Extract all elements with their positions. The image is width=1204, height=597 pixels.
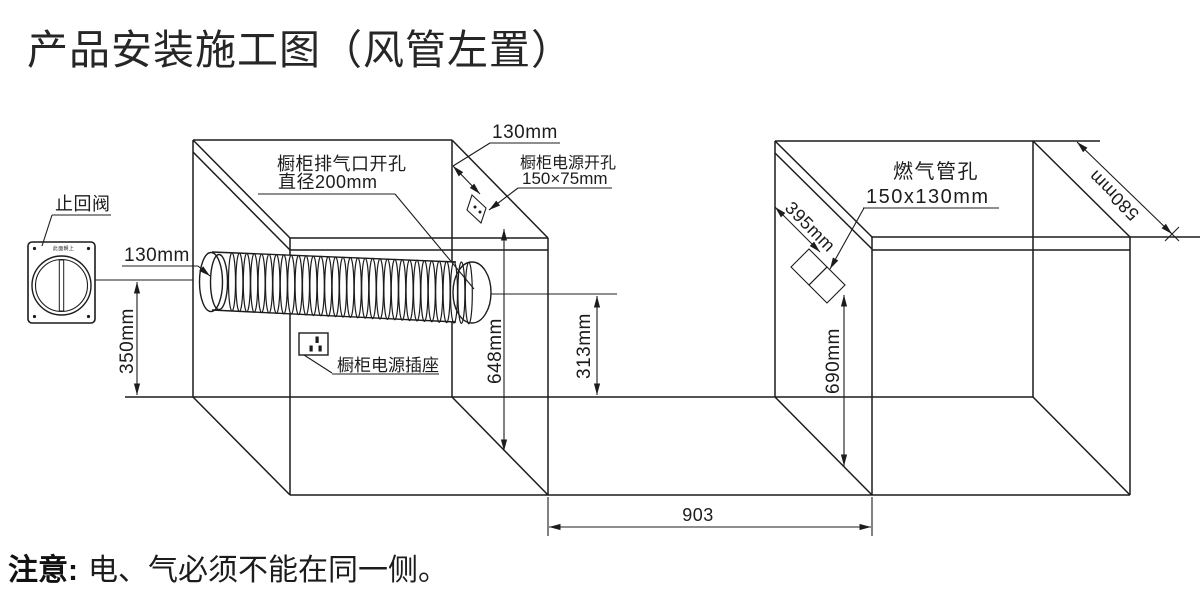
screw-hole <box>87 247 90 250</box>
power-hole <box>467 195 486 223</box>
dim-350-text: 350mm <box>117 308 138 374</box>
power-hole-dot <box>474 206 477 209</box>
gas-hole-label-line2: 150x130mm <box>866 186 990 208</box>
leader-line <box>489 188 518 210</box>
dim-690-text: 690mm <box>823 328 844 394</box>
label-gas-hole: 燃气管孔 150x130mm <box>830 160 999 269</box>
cabinet-edge <box>452 397 548 495</box>
cabinet-edge <box>193 140 290 238</box>
screw-hole <box>87 315 90 318</box>
dimension-line <box>453 166 480 194</box>
note: 注意: 电、气必须不能在同一侧。 <box>8 553 448 587</box>
dim-313mm: 313mm <box>491 294 617 395</box>
socket-outline <box>299 333 328 355</box>
power-hole-dot <box>479 211 482 214</box>
socket <box>299 333 328 355</box>
note-text: 电、气必须不能在同一侧。 <box>88 554 448 587</box>
cabinet-edge <box>1033 397 1130 495</box>
dim-580mm: 580mm <box>1077 142 1179 241</box>
gas-hole-outline <box>791 249 827 285</box>
dim-903-text: 903 <box>682 505 714 525</box>
power-hole-outline <box>467 195 486 223</box>
dim-648-text: 648mm <box>485 318 506 384</box>
dim-350mm: 350mm <box>117 282 138 395</box>
leader-line <box>304 355 332 373</box>
check-valve: 此面朝上 <box>28 242 95 323</box>
socket-pin <box>316 337 319 344</box>
dim-648mm: 648mm <box>485 229 506 451</box>
cabinet-edge <box>775 397 872 495</box>
note-label: 注意: <box>8 553 78 587</box>
dim-580-text: 580mm <box>1085 166 1143 224</box>
dim-313-text: 313mm <box>574 313 595 379</box>
socket-pin <box>319 346 322 352</box>
exhaust-duct <box>200 252 492 324</box>
page-title: 产品安装施工图（风管左置） <box>27 27 573 73</box>
screw-hole <box>33 247 36 250</box>
check-valve-flap-hinge <box>59 260 63 311</box>
top-offset-label: 130mm <box>492 122 558 143</box>
cabinet-edge <box>193 397 290 495</box>
callouts: 止回阀 130mm 350mm 橱柜排气口开孔 直径200mm 130mm <box>42 122 1179 536</box>
dim-395-text: 395mm <box>781 198 839 256</box>
gas-hole-label-line1: 燃气管孔 <box>893 160 979 183</box>
label-check-valve: 止回阀 <box>42 194 111 246</box>
power-hole-label-line2: 150×75mm <box>522 169 608 188</box>
screw-hole <box>33 315 36 318</box>
check-valve-label: 止回阀 <box>55 194 111 214</box>
duct-offset-label: 130mm <box>124 245 190 266</box>
gas-hole-outline <box>809 267 845 303</box>
dim-903: 903 <box>548 497 872 536</box>
label-socket: 橱柜电源插座 <box>304 355 439 375</box>
socket-pin <box>310 346 313 352</box>
dim-690mm: 690mm <box>823 295 844 466</box>
cabinet-edge <box>775 141 872 237</box>
label-duct-offset: 130mm <box>122 245 210 276</box>
exhaust-hole-label-line1: 橱柜排气口开孔 <box>277 154 407 174</box>
valve-orientation-text: 此面朝上 <box>53 245 74 252</box>
exhaust-hole-label-line2: 直径200mm <box>278 172 378 192</box>
countertop-edge <box>193 152 290 250</box>
installation-diagram: 产品安装施工图（风管左置） <box>0 0 1204 597</box>
label-power-hole: 橱柜电源开孔 150×75mm <box>489 154 616 210</box>
socket-label: 橱柜电源插座 <box>337 356 439 375</box>
